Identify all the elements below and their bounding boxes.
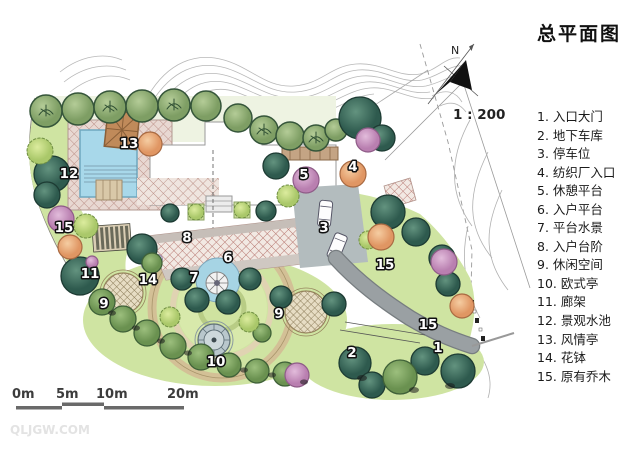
tree (191, 91, 221, 121)
legend-item: 1. 入口大门 (537, 108, 615, 127)
tree (34, 182, 60, 208)
entry-steps (206, 196, 232, 212)
tree (276, 122, 304, 150)
tree (450, 294, 474, 318)
legend-item: 11. 廊架 (537, 293, 615, 312)
tree (402, 218, 430, 246)
legend-item: 15. 原有乔木 (537, 368, 615, 387)
tree (441, 354, 475, 388)
tree (160, 333, 186, 359)
scale-bar: 0m 5m 10m 20m (12, 387, 199, 410)
tree (216, 290, 240, 314)
tree (161, 204, 179, 222)
tree (436, 272, 460, 296)
legend-item: 3. 停车位 (537, 145, 615, 164)
tree (245, 359, 269, 383)
shrub (239, 312, 259, 332)
legend-item: 13. 风情亭 (537, 331, 615, 350)
legend-item: 14. 花钵 (537, 349, 615, 368)
marker-15: 15 (419, 317, 438, 333)
scale-label-5m: 5m (56, 387, 79, 402)
scale-label-10m: 10m (96, 387, 128, 402)
tree (138, 132, 162, 156)
tree (142, 253, 162, 273)
shrub (27, 138, 53, 164)
legend-item: 8. 入户台阶 (537, 238, 615, 257)
tree (368, 224, 394, 250)
legend-item: 2. 地下车库 (537, 127, 615, 146)
north-label: N (451, 44, 459, 57)
tree (58, 235, 82, 259)
marker-11: 11 (81, 266, 100, 282)
watermark: QLJGW.COM (10, 423, 90, 437)
marker-9: 9 (99, 296, 108, 312)
legend-item: 12. 景观水池 (537, 312, 615, 331)
marker-6: 6 (223, 250, 232, 266)
pool-platform (96, 180, 122, 200)
scale-label-20m: 20m (167, 387, 199, 402)
legend-item: 6. 入户平台 (537, 201, 615, 220)
marker-7: 7 (189, 270, 198, 286)
marker-10: 10 (207, 354, 226, 370)
tree (239, 268, 261, 290)
marker-3: 3 (319, 220, 328, 236)
tree (134, 320, 160, 346)
legend-list: 1. 入口大门 2. 地下车库 3. 停车位 4. 纺织厂入口 5. 休憩平台 … (537, 108, 615, 386)
tree (431, 249, 457, 275)
tree (322, 292, 346, 316)
shrub (160, 307, 180, 327)
tree (62, 93, 94, 125)
marker-13: 13 (120, 136, 139, 152)
marker-14: 14 (139, 272, 158, 288)
scale-ratio: 1 : 200 (453, 107, 505, 123)
legend-item: 7. 平台水景 (537, 219, 615, 238)
marker-12: 12 (60, 166, 79, 182)
scale-label-0m: 0m (12, 387, 35, 402)
shrub (74, 214, 98, 238)
marker-5: 5 (299, 167, 308, 183)
tree (263, 153, 289, 179)
page-title: 总平面图 (537, 19, 621, 46)
marker-4: 4 (348, 159, 357, 175)
legend-item: 10. 欧式亭 (537, 275, 615, 294)
marker-15: 15 (55, 220, 74, 236)
shrub (234, 202, 250, 218)
north-arrow: N (428, 44, 478, 104)
tree (185, 288, 209, 312)
master-plan-sheet: N 1 : 200 12 13 15 8 6 7 14 11 9 10 9 5 … (0, 0, 640, 452)
legend-item: 9. 休闲空间 (537, 256, 615, 275)
tree (371, 195, 405, 229)
marker-8: 8 (182, 230, 191, 246)
marker-1: 1 (433, 340, 442, 356)
marker-9: 9 (274, 306, 283, 322)
marker-2: 2 (347, 345, 356, 361)
tree (256, 201, 276, 221)
shrub (188, 204, 204, 220)
legend-item: 5. 休憩平台 (537, 182, 615, 201)
tree (356, 128, 380, 152)
tree (270, 286, 292, 308)
marker-15: 15 (376, 257, 395, 273)
tree (126, 90, 158, 122)
legend-item: 4. 纺织厂入口 (537, 164, 615, 183)
tree (224, 104, 252, 132)
